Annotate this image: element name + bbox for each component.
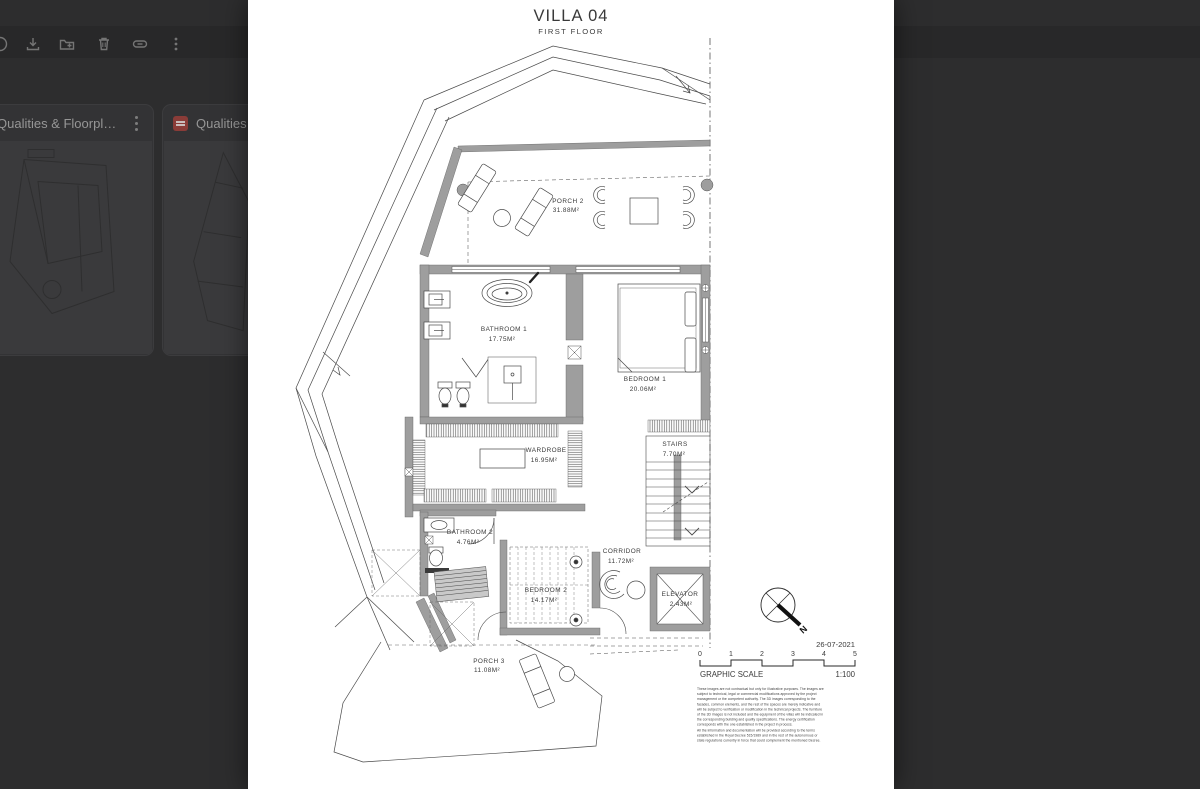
file-card-thumbnail — [0, 141, 152, 354]
room-area-stairs: 7.70M² — [663, 451, 686, 458]
svg-text:management or the competent au: management or the competent authority. T… — [697, 697, 816, 701]
room-area-porch3: 11.08M² — [474, 667, 500, 674]
more-options-icon[interactable] — [167, 35, 185, 53]
bathroom1-fixtures — [424, 273, 538, 407]
graphic-scale: 0 1 2 3 4 5 GRAPHIC SCALE 1:100 — [698, 651, 857, 679]
svg-text:facades, common elements, and: facades, common elements, and the rest o… — [697, 702, 820, 706]
svg-text:established in the Royal Decre: established in the Royal Decree 515/1989… — [697, 733, 818, 737]
room-area-bedroom2: 14.17M² — [531, 597, 558, 604]
scale-tick: 1 — [729, 651, 733, 658]
room-area-bathroom1: 17.75M² — [489, 336, 516, 343]
scale-tick: 2 — [760, 651, 764, 658]
room-label-wardrobe: WARDROBE — [526, 447, 567, 454]
room-area-bathroom2: 4.76M² — [457, 539, 480, 546]
room-label-corridor: CORRIDOR — [603, 548, 641, 555]
svg-text:state regulations currently in: state regulations currently in force tha… — [697, 739, 821, 743]
delete-icon[interactable] — [95, 35, 113, 53]
room-label-elevator: ELEVATOR — [662, 591, 699, 598]
svg-text:All the information and docume: All the information and documentation wi… — [697, 728, 815, 732]
scale-tick: 0 — [698, 651, 702, 658]
room-label-bathroom1: BATHROOM 1 — [481, 326, 527, 333]
page-title: VILLA 04 — [534, 7, 609, 25]
plan-date: 26-07-2021 — [816, 640, 855, 649]
svg-text:the corresponding building and: the corresponding building and quality s… — [697, 718, 815, 722]
room-area-porch2: 31.88M² — [553, 207, 580, 214]
graphic-scale-label: GRAPHIC SCALE — [700, 670, 763, 679]
room-label-porch2: PORCH 2 — [552, 198, 584, 205]
download-icon[interactable] — [24, 35, 42, 53]
disclaimer-text: These images are not contractual but onl… — [697, 687, 824, 743]
room-label-porch3: PORCH 3 — [473, 658, 505, 665]
room-label-stairs: STAIRS — [662, 441, 687, 448]
card-menu-icon[interactable] — [129, 114, 143, 132]
screen: Qualities & Floorpla... Qualities & — [0, 0, 1200, 789]
add-to-folder-icon[interactable] — [58, 35, 76, 53]
scale-ratio: 1:100 — [835, 670, 855, 679]
link-icon[interactable] — [131, 35, 149, 53]
document-page: VILLA 04 FIRST FLOOR — [248, 0, 894, 789]
room-area-elevator: 2.43M² — [670, 601, 693, 608]
svg-text:of the 3D images is not includ: of the 3D images is not included and the… — [697, 713, 823, 717]
file-card-title: Qualities & Floorpla... — [0, 116, 121, 131]
bedroom1-bed — [618, 284, 700, 372]
elevator-shaft — [650, 567, 710, 631]
pdf-icon — [173, 116, 188, 131]
room-label-bedroom2: BEDROOM 2 — [525, 587, 567, 594]
compass-n-label: N — [798, 624, 810, 636]
svg-text:will be subject to verificatio: will be subject to verification or modif… — [697, 707, 822, 711]
print-icon[interactable] — [0, 35, 9, 53]
page-subtitle: FIRST FLOOR — [538, 27, 603, 36]
room-area-wardrobe: 16.95M² — [531, 457, 558, 464]
room-label-bathroom2: BATHROOM 2 — [447, 529, 493, 536]
scale-tick: 3 — [791, 651, 795, 658]
room-area-bedroom1: 20.06M² — [630, 386, 657, 393]
floor-plan: VILLA 04 FIRST FLOOR — [248, 0, 894, 789]
svg-text:subject to technical, legal or: subject to technical, legal or commercia… — [697, 692, 817, 696]
room-label-bedroom1: BEDROOM 1 — [624, 376, 666, 383]
scale-tick: 4 — [822, 651, 826, 658]
north-arrow: N — [761, 588, 809, 635]
svg-text:corresponds with the one estab: corresponds with the one established in … — [697, 723, 793, 727]
room-area-corridor: 11.72M² — [608, 558, 634, 565]
svg-text:These images are not contractu: These images are not contractual but onl… — [697, 687, 824, 691]
roof-outlines — [296, 46, 710, 762]
scale-tick: 5 — [853, 651, 857, 658]
file-card[interactable]: Qualities & Floorpla... — [0, 104, 154, 356]
